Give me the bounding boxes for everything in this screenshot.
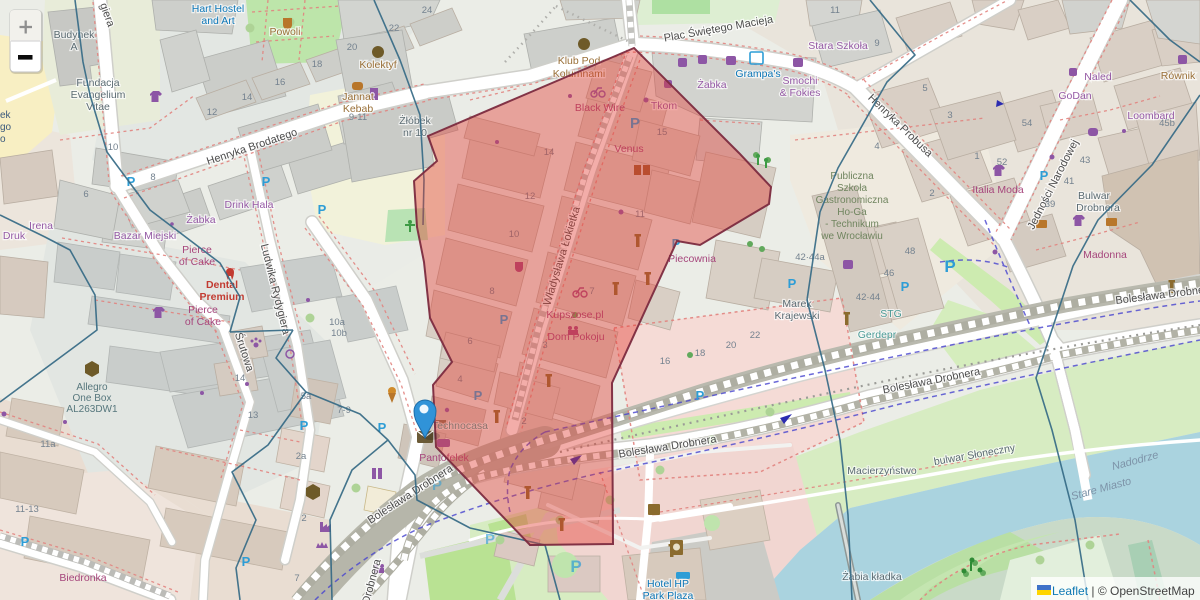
svg-text:Madonna: Madonna <box>1083 249 1127 261</box>
svg-text:Hotel HP: Hotel HP <box>647 578 689 590</box>
svg-text:Pierce: Pierce <box>188 304 218 316</box>
svg-text:A: A <box>70 41 77 53</box>
svg-text:Powoli: Powoli <box>270 26 301 38</box>
svg-text:Ho-Ga: Ho-Ga <box>837 207 867 218</box>
svg-text:43: 43 <box>1080 155 1091 166</box>
svg-text:Bazar Miejski: Bazar Miejski <box>114 230 176 242</box>
svg-text:Jannat: Jannat <box>342 91 374 103</box>
svg-text:5: 5 <box>922 83 927 94</box>
svg-text:24: 24 <box>422 5 433 16</box>
svg-text:Żabka: Żabka <box>186 213 215 226</box>
svg-text:7: 7 <box>294 573 299 584</box>
svg-text:14: 14 <box>235 373 246 384</box>
svg-text:11a: 11a <box>40 439 56 450</box>
svg-text:P: P <box>696 388 705 403</box>
svg-text:Allegro: Allegro <box>76 382 108 393</box>
svg-text:18: 18 <box>695 348 706 359</box>
svg-text:Vitae: Vitae <box>86 101 110 113</box>
svg-text:54: 54 <box>1022 118 1033 129</box>
svg-text:Szkoła: Szkoła <box>837 183 867 194</box>
svg-text:16: 16 <box>275 77 286 88</box>
svg-text:Smochi: Smochi <box>782 75 817 87</box>
svg-text:46: 46 <box>884 268 895 279</box>
svg-text:Żabka: Żabka <box>697 78 726 91</box>
svg-text:AL263DW1: AL263DW1 <box>66 404 118 415</box>
svg-text:STG: STG <box>880 308 902 320</box>
svg-text:P: P <box>21 534 30 549</box>
svg-text:20: 20 <box>347 42 358 53</box>
svg-text:o: o <box>0 134 6 145</box>
svg-text:Leaflet | © OpenStreetMap: Leaflet | © OpenStreetMap <box>1052 584 1195 598</box>
svg-text:12: 12 <box>207 107 218 118</box>
svg-text:52: 52 <box>997 157 1008 168</box>
svg-text:2: 2 <box>301 513 306 524</box>
svg-text:P: P <box>901 279 910 294</box>
svg-text:11: 11 <box>830 5 840 16</box>
svg-text:ek: ek <box>0 110 12 121</box>
svg-text:22: 22 <box>389 23 400 34</box>
svg-text:Równik: Równik <box>1161 70 1196 82</box>
svg-text:P: P <box>300 418 309 433</box>
svg-text:GoDan: GoDan <box>1058 90 1091 102</box>
svg-text:Hart Hostel: Hart Hostel <box>192 3 245 15</box>
svg-text:Drink Hala: Drink Hala <box>224 199 273 211</box>
svg-text:P: P <box>570 557 581 576</box>
svg-text:9-11: 9-11 <box>349 112 367 123</box>
svg-text:nr 10: nr 10 <box>403 127 427 139</box>
svg-text:41: 41 <box>1064 176 1075 187</box>
svg-text:16: 16 <box>660 356 671 367</box>
svg-text:Gerdepr: Gerdepr <box>858 329 897 341</box>
svg-text:P: P <box>944 257 955 276</box>
svg-text:Fundacja: Fundacja <box>76 77 119 89</box>
svg-text:Żłóbek: Żłóbek <box>399 114 431 127</box>
svg-text:P: P <box>242 554 251 569</box>
svg-text:20: 20 <box>726 340 737 351</box>
svg-text:Park Plaza: Park Plaza <box>643 590 694 600</box>
svg-text:we Wrocławiu: we Wrocławiu <box>820 231 883 242</box>
svg-text:2a: 2a <box>296 451 307 462</box>
svg-text:of Cake: of Cake <box>179 256 215 268</box>
svg-text:P: P <box>788 276 797 291</box>
svg-text:4: 4 <box>874 141 879 152</box>
svg-text:39: 39 <box>1045 199 1056 210</box>
svg-text:42·44: 42·44 <box>856 292 880 303</box>
svg-text:45b: 45b <box>1159 118 1175 129</box>
svg-text:9: 9 <box>874 38 879 49</box>
svg-text:P: P <box>1040 168 1049 183</box>
svg-text:P: P <box>378 420 387 435</box>
svg-text:P: P <box>262 174 271 189</box>
svg-text:Evangelium: Evangelium <box>71 89 126 101</box>
svg-text:8: 8 <box>150 172 155 183</box>
svg-text:10b: 10b <box>331 328 347 339</box>
svg-text:14: 14 <box>242 92 253 103</box>
svg-text:6: 6 <box>83 189 88 200</box>
svg-text:Stara Szkoła: Stara Szkoła <box>808 40 868 52</box>
svg-text:42·44a: 42·44a <box>795 252 825 263</box>
svg-text:Naled: Naled <box>1084 71 1112 83</box>
svg-text:11-13: 11-13 <box>15 504 39 515</box>
svg-text:and Art: and Art <box>201 15 234 27</box>
svg-text:Piecownia: Piecownia <box>668 253 716 265</box>
svg-text:3: 3 <box>947 110 952 121</box>
svg-text:One Box: One Box <box>73 393 112 404</box>
svg-text:13: 13 <box>248 410 259 421</box>
svg-text:22: 22 <box>750 330 761 341</box>
svg-text:& Fokies: & Fokies <box>780 87 821 99</box>
svg-text:Budynek: Budynek <box>54 29 96 41</box>
svg-text:1: 1 <box>974 151 979 162</box>
svg-text:Druk: Druk <box>3 230 26 242</box>
svg-text:Kolektyf: Kolektyf <box>359 59 396 71</box>
svg-text:2: 2 <box>929 188 934 199</box>
svg-text:of Cake: of Cake <box>185 316 221 328</box>
svg-text:go: go <box>0 122 12 133</box>
svg-text:18: 18 <box>312 59 323 70</box>
svg-text:Bulwar: Bulwar <box>1078 190 1111 202</box>
svg-text:Macierzyństwo: Macierzyństwo <box>847 465 917 477</box>
svg-text:48: 48 <box>905 246 916 257</box>
svg-text:10a: 10a <box>329 317 346 328</box>
svg-text:10: 10 <box>108 142 119 153</box>
svg-text:Biedronka: Biedronka <box>59 572 106 584</box>
svg-text:Grampa's: Grampa's <box>735 68 780 80</box>
svg-text:P: P <box>318 202 327 217</box>
svg-text:- Technikum: - Technikum <box>825 219 879 230</box>
svg-text:Italia Moda: Italia Moda <box>972 184 1024 196</box>
